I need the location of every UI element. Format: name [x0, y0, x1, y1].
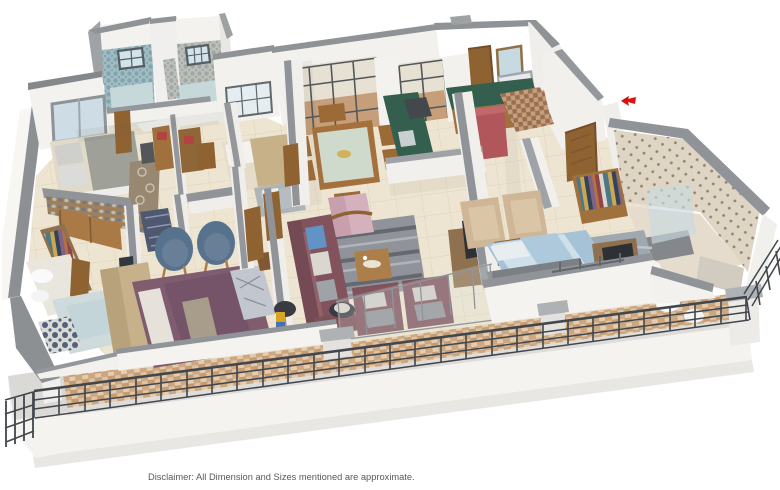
- svg-text:Disclaimer: All Dimension and: Disclaimer: All Dimension and Sizes ment…: [148, 472, 415, 482]
